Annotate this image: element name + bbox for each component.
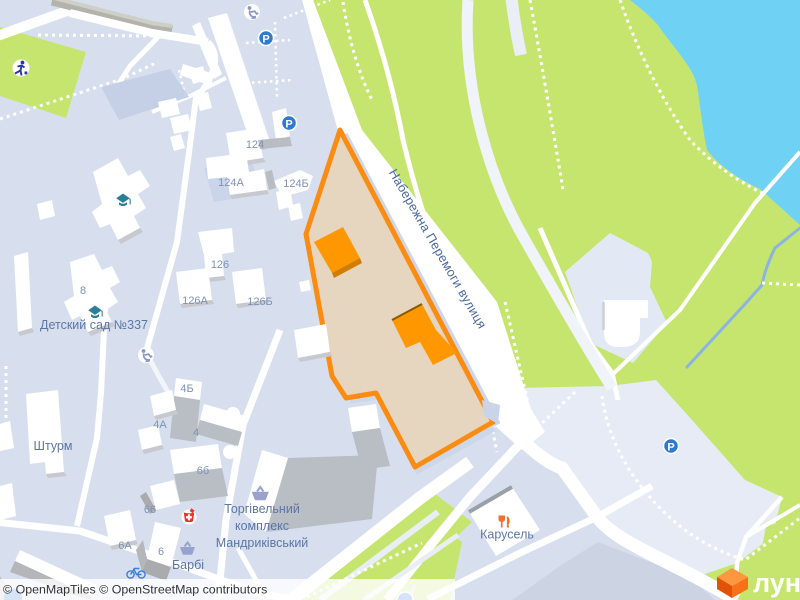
svg-text:Детский сад №337: Детский сад №337	[40, 318, 148, 332]
svg-text:4: 4	[193, 427, 199, 439]
svg-text:124: 124	[246, 139, 264, 151]
svg-text:Торгівельний: Торгівельний	[224, 502, 300, 516]
svg-text:комплекс: комплекс	[235, 519, 289, 533]
svg-text:Барбі: Барбі	[172, 558, 204, 572]
svg-text:Карусель: Карусель	[480, 528, 534, 542]
svg-text:лун: лун	[753, 568, 800, 598]
svg-text:6б: 6б	[197, 465, 209, 477]
svg-text:6: 6	[158, 546, 164, 558]
svg-text:© OpenMapTiles © OpenStreetMap: © OpenMapTiles © OpenStreetMap contribut…	[3, 583, 267, 597]
svg-text:4А: 4А	[153, 419, 167, 431]
svg-text:P: P	[262, 34, 269, 46]
svg-text:126А: 126А	[182, 295, 208, 307]
svg-text:8: 8	[80, 285, 86, 297]
svg-text:4Б: 4Б	[180, 383, 193, 395]
svg-text:Штурм: Штурм	[34, 439, 73, 453]
svg-text:P: P	[285, 119, 292, 131]
svg-text:124А: 124А	[218, 177, 244, 189]
svg-text:6А: 6А	[118, 540, 132, 552]
svg-text:P: P	[667, 442, 674, 454]
svg-text:66: 66	[144, 504, 156, 516]
svg-text:126Б: 126Б	[247, 296, 273, 308]
svg-text:126: 126	[211, 259, 229, 271]
svg-text:124Б: 124Б	[283, 178, 309, 190]
svg-text:Мандриківський: Мандриківський	[216, 536, 309, 550]
